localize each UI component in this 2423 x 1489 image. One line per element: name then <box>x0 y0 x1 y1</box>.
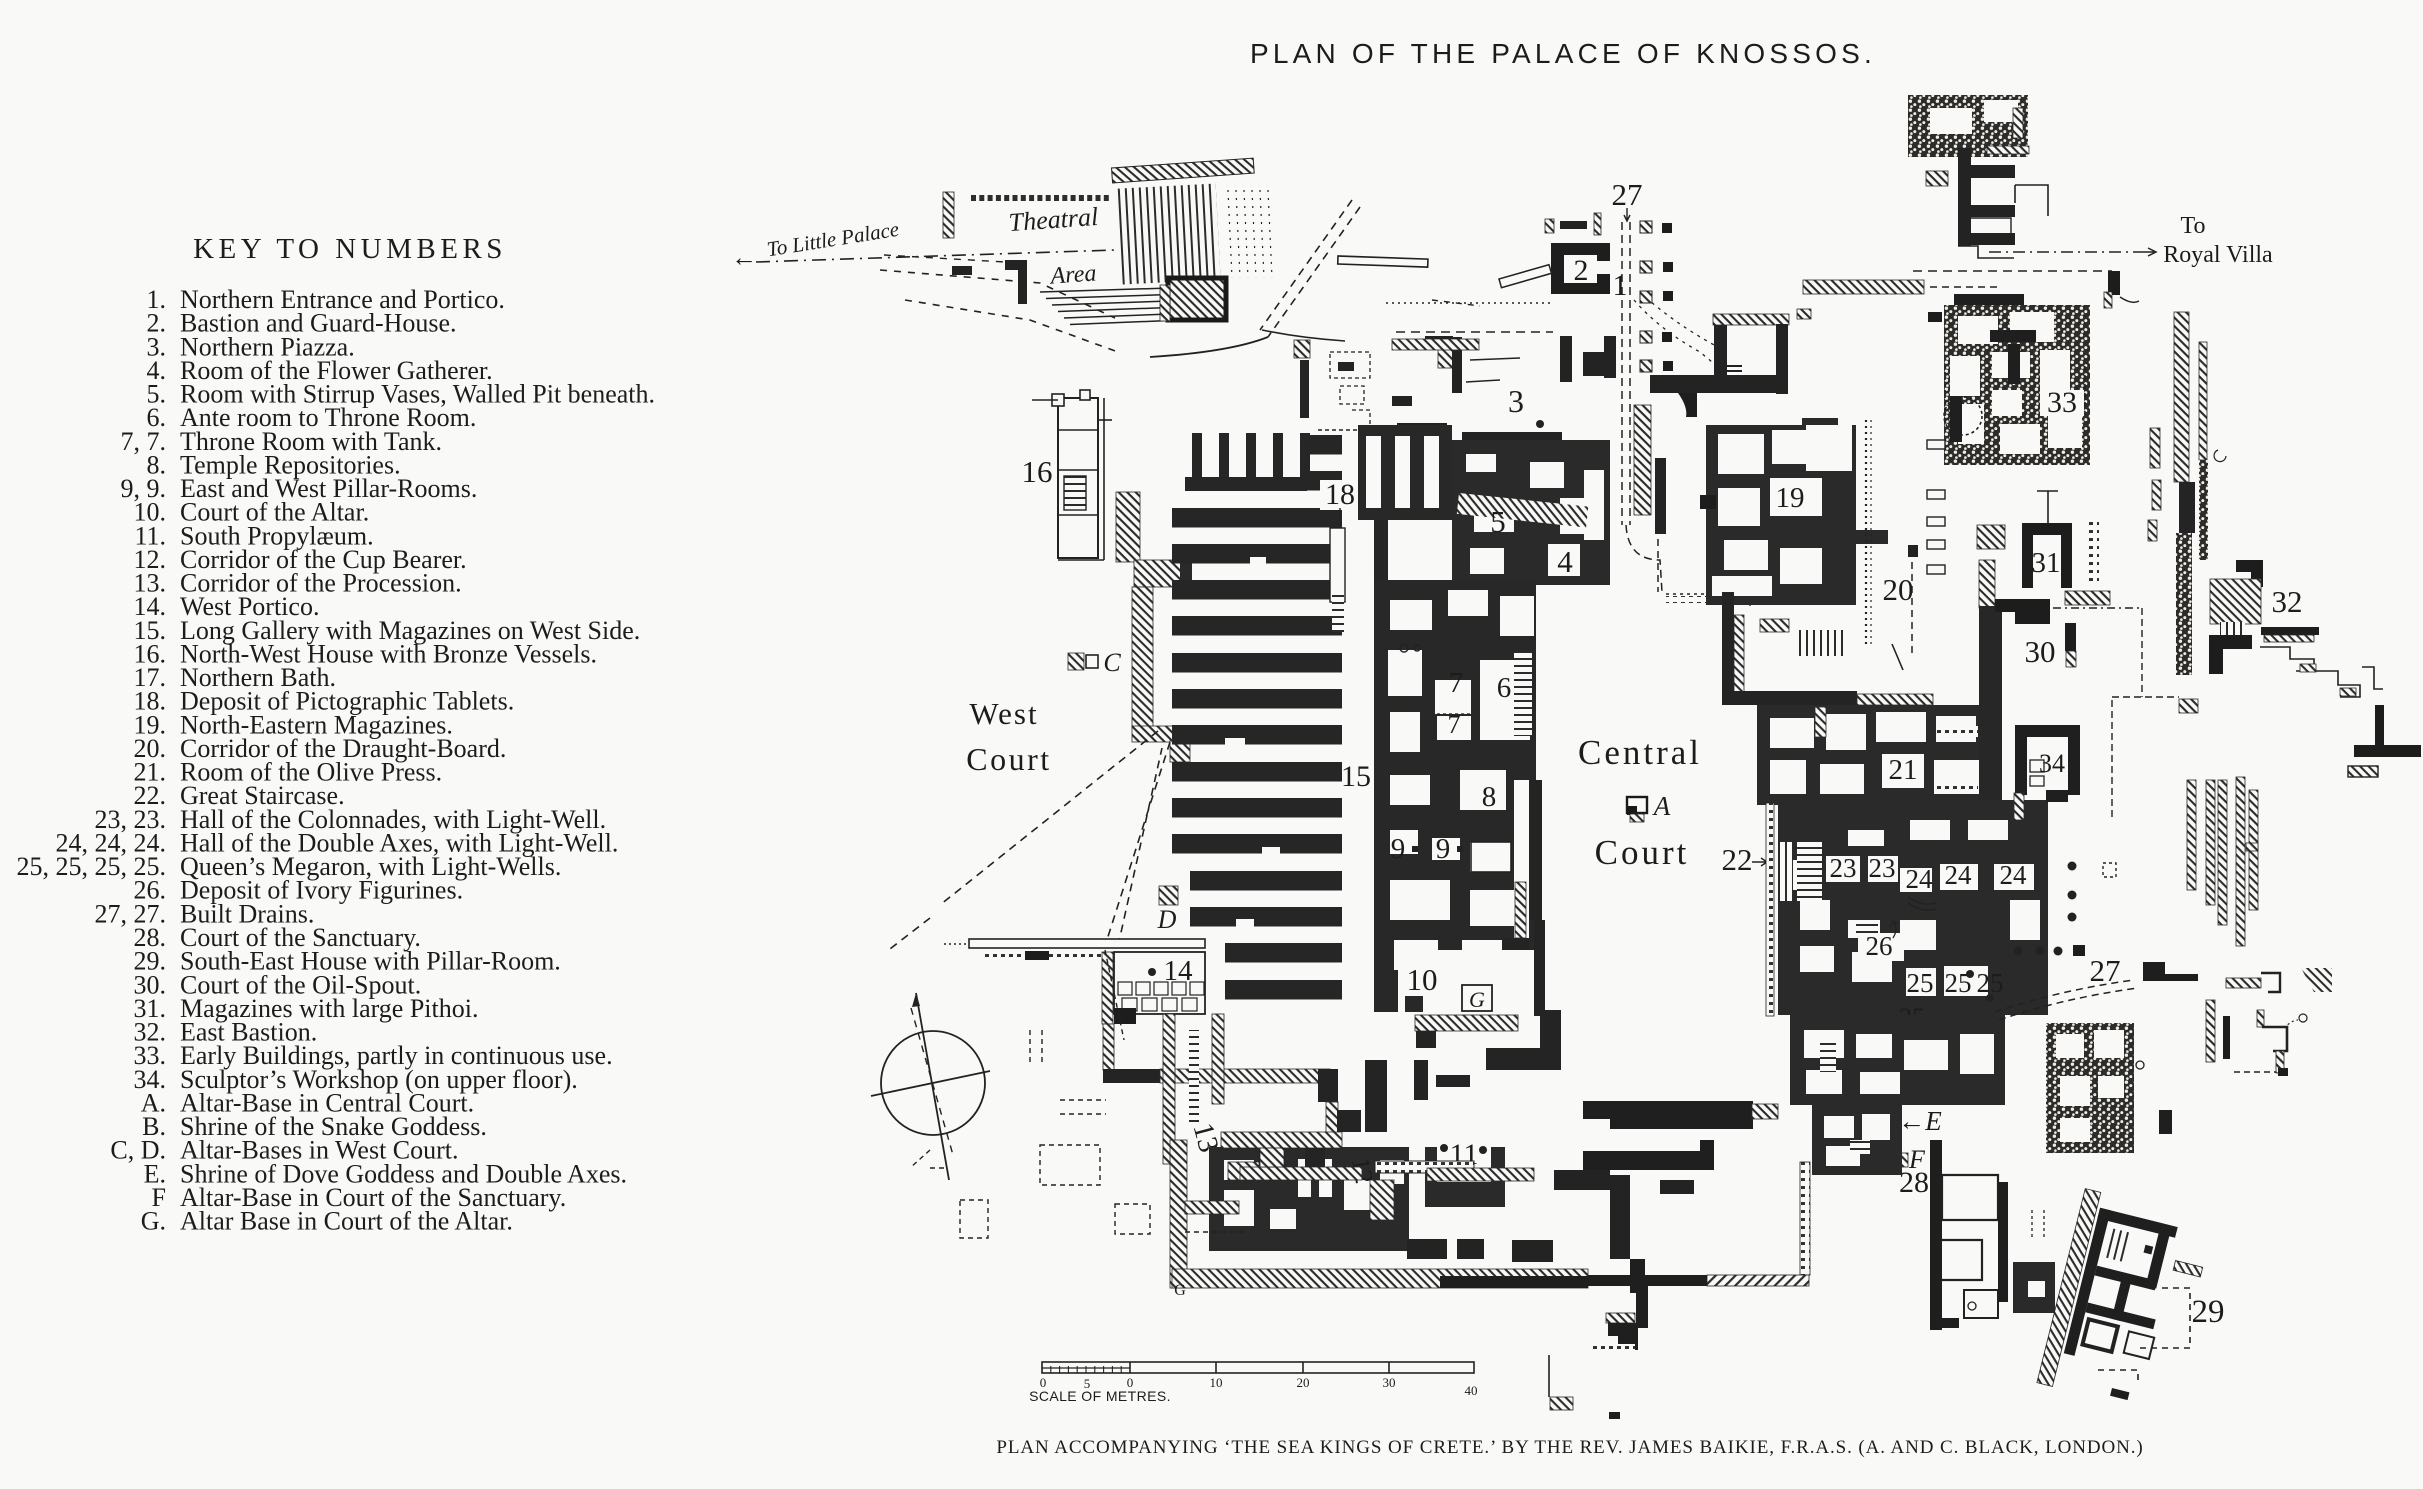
svg-text:Royal Villa: Royal Villa <box>2163 242 2273 268</box>
svg-text:4: 4 <box>1557 544 1573 579</box>
svg-text:18: 18 <box>1325 478 1355 511</box>
svg-text:24: 24 <box>2000 860 2028 890</box>
svg-text:PLAN OF THE PALACE OF KNOSSOS.: PLAN OF THE PALACE OF KNOSSOS. <box>1250 38 1876 69</box>
svg-text:15: 15 <box>1341 760 1371 793</box>
svg-text:30: 30 <box>2025 634 2056 669</box>
svg-text:20: 20 <box>1297 1375 1310 1390</box>
svg-text:29: 29 <box>2192 1294 2225 1330</box>
svg-text:8: 8 <box>1482 781 1497 813</box>
svg-text:2: 2 <box>1574 254 1589 287</box>
svg-text:7: 7 <box>1449 667 1464 699</box>
svg-text:9: 9 <box>1391 833 1406 865</box>
svg-text:D: D <box>1157 905 1177 934</box>
svg-text:16: 16 <box>1022 454 1053 489</box>
svg-text:G: G <box>1469 987 1485 1012</box>
svg-text:To: To <box>2181 213 2206 239</box>
svg-text:3: 3 <box>1508 383 1524 419</box>
svg-text:27: 27 <box>1612 177 1643 212</box>
svg-text:10: 10 <box>1407 962 1438 997</box>
svg-text:33: 33 <box>2047 386 2077 419</box>
svg-text:C: C <box>1103 648 1121 677</box>
svg-text:G: G <box>1174 1282 1186 1299</box>
svg-text:West: West <box>969 696 1038 731</box>
svg-text:20: 20 <box>1883 572 1914 607</box>
svg-text:25: 25 <box>1977 968 2004 998</box>
svg-text:Central: Central <box>1578 733 1702 772</box>
svg-text:SCALE OF METRES.: SCALE OF METRES. <box>1029 1388 1171 1404</box>
svg-text:10: 10 <box>1210 1375 1223 1390</box>
svg-text:34: 34 <box>2039 749 2065 778</box>
svg-text:28: 28 <box>1899 1166 1929 1199</box>
svg-text:←: ← <box>731 243 757 272</box>
svg-text:25: 25 <box>1907 968 1934 998</box>
svg-text:24: 24 <box>1906 864 1934 894</box>
svg-text:←E: ←E <box>1898 1106 1942 1136</box>
svg-text:6: 6 <box>1497 672 1512 704</box>
svg-text:23: 23 <box>1869 853 1896 883</box>
svg-text:PLAN ACCOMPANYING ‘THE SEA KIN: PLAN ACCOMPANYING ‘THE SEA KINGS OF CRET… <box>996 1437 2143 1458</box>
svg-text:Court: Court <box>1595 833 1690 872</box>
svg-text:Court: Court <box>966 741 1051 777</box>
svg-text:1: 1 <box>1613 269 1628 302</box>
svg-text:30: 30 <box>1383 1375 1396 1390</box>
svg-text:31: 31 <box>2032 547 2061 579</box>
svg-text:24: 24 <box>1945 860 1973 890</box>
svg-text:Area: Area <box>1048 260 1097 289</box>
svg-text:40: 40 <box>1465 1383 1478 1398</box>
svg-text:A: A <box>1652 791 1671 821</box>
svg-text:21: 21 <box>1889 754 1918 786</box>
svg-text:32: 32 <box>2272 584 2303 619</box>
svg-text:G.: G. <box>141 1207 166 1236</box>
svg-text:22: 22 <box>1722 842 1753 877</box>
svg-text:5: 5 <box>1490 504 1506 539</box>
svg-text:9: 9 <box>1436 833 1451 865</box>
svg-text:23: 23 <box>1830 853 1857 883</box>
svg-text:19: 19 <box>1776 482 1805 514</box>
svg-text:KEY TO NUMBERS: KEY TO NUMBERS <box>193 233 507 265</box>
svg-text:Altar Base in Court of the Alt: Altar Base in Court of the Altar. <box>180 1207 513 1236</box>
